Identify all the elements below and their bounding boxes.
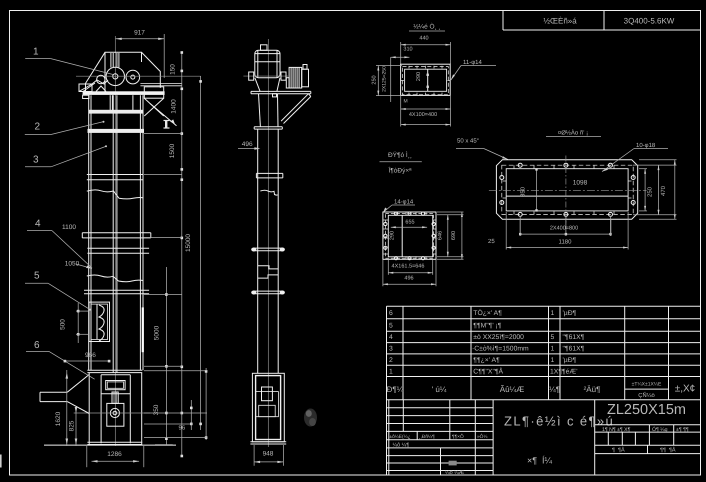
svg-text:150: 150 <box>170 64 177 75</box>
svg-text:1: 1 <box>389 368 393 375</box>
svg-text:966: 966 <box>85 352 96 359</box>
svg-text:5: 5 <box>551 334 555 341</box>
svg-text:²Äü¶: ²Äü¶ <box>584 385 601 394</box>
svg-text:500: 500 <box>60 319 67 330</box>
svg-text:ZL250X15m: ZL250X15m <box>607 402 686 418</box>
svg-text:1: 1 <box>551 346 555 353</box>
svg-text:5: 5 <box>34 271 40 282</box>
svg-text:3: 3 <box>389 346 393 353</box>
svg-text:96: 96 <box>179 425 186 432</box>
svg-text:14-φ14: 14-φ14 <box>394 199 414 206</box>
svg-text:1100: 1100 <box>62 224 76 231</box>
svg-text:M: M <box>404 99 408 105</box>
svg-text:»Ô¼: »Ô¼ <box>477 433 488 440</box>
svg-text:¼¶: ¼¶ <box>549 385 560 394</box>
svg-text:1: 1 <box>33 46 39 57</box>
svg-text:¼ô ¼¶: ¼ô ¼¶ <box>393 443 410 449</box>
svg-text:470: 470 <box>660 185 667 196</box>
svg-text:655: 655 <box>405 220 414 226</box>
svg-text:6: 6 <box>389 310 393 317</box>
svg-text:½ŒÈñ»á: ½ŒÈñ»á <box>543 17 577 26</box>
svg-text:11-φ14: 11-φ14 <box>463 59 482 66</box>
svg-text:¸,Ðñ¼¶: ¸,Ðñ¼¶ <box>419 434 435 440</box>
svg-text:1: 1 <box>551 310 555 317</box>
svg-text:"¶61X¶: "¶61X¶ <box>563 334 585 341</box>
svg-text:"¶61X¶: "¶61X¶ <box>563 346 585 353</box>
svg-text:ÇÑ¼ö: ÇÑ¼ö <box>638 391 654 399</box>
svg-text:1400: 1400 <box>171 99 178 114</box>
svg-text:310: 310 <box>403 47 412 53</box>
svg-text:4X100=400: 4X100=400 <box>409 112 437 118</box>
svg-text:25: 25 <box>488 238 495 245</box>
svg-text:¶¶¿×' A¶: ¶¶¿×' A¶ <box>473 357 500 364</box>
svg-text:·C±ò%ì¶=1500mm: ·C±ò%ì¶=1500mm <box>472 346 529 353</box>
svg-text:'µÐ¶: 'µÐ¶ <box>563 310 577 317</box>
svg-text:3Q400-5.6KW: 3Q400-5.6KW <box>624 17 675 26</box>
svg-text:646: 646 <box>438 231 444 240</box>
svg-text:2X125=250: 2X125=250 <box>382 66 388 92</box>
svg-text:350: 350 <box>153 404 160 415</box>
svg-text:917: 917 <box>134 30 145 37</box>
svg-text:2: 2 <box>35 121 41 132</box>
svg-text:4X161.5=646: 4X161.5=646 <box>392 264 425 270</box>
svg-text:4: 4 <box>389 334 393 341</box>
svg-text:1X¶¶éÆ': 1X¶¶éÆ' <box>550 368 578 375</box>
svg-text:1286: 1286 <box>107 451 122 458</box>
svg-text:±¶ ¶¶: ±¶ ¶¶ <box>676 427 689 433</box>
svg-text:15000: 15000 <box>185 234 192 252</box>
svg-text:ZL¶·ê½ì c é¶»ú: ZL¶·ê½ì c é¶»ú <box>504 414 614 429</box>
svg-text:50 x 45°: 50 x 45° <box>457 138 480 145</box>
svg-text:1: 1 <box>551 357 555 364</box>
svg-text:1050: 1050 <box>65 261 80 268</box>
svg-text:±ô¼E(¼¿: ±ô¼E(¼¿ <box>390 434 411 440</box>
svg-text:825: 825 <box>69 420 76 431</box>
svg-text:¶¶×Õ: ¶¶×Õ <box>452 433 464 440</box>
svg-text:¼ô ¼Æ: ¼ô ¼Æ <box>445 470 465 476</box>
svg-text:±,X¢: ±,X¢ <box>675 384 696 395</box>
svg-text:' ú¼: ' ú¼ <box>432 385 447 394</box>
svg-text:Î¶òÐý×ª: Î¶òÐý×ª <box>387 167 412 175</box>
svg-text:¤Ø½Ào ñ' ¡: ¤Ø½Ào ñ' ¡ <box>558 129 588 137</box>
svg-text:¶¶ ¶Å: ¶¶ ¶Å <box>660 447 676 454</box>
svg-text:290: 290 <box>416 72 422 81</box>
svg-text:2X400=800: 2X400=800 <box>550 226 578 232</box>
svg-text:TÒ¿×' A¶: TÒ¿×' A¶ <box>473 309 502 317</box>
svg-text:Ó¶ ¼g: Ó¶ ¼g <box>652 426 668 433</box>
svg-text:ÐŸ¶ó Ì¸¸: ÐŸ¶ó Ì¸¸ <box>388 151 412 159</box>
svg-text:690: 690 <box>451 231 457 240</box>
svg-text:×¶ Í¼: ×¶ Í¼ <box>527 456 553 466</box>
svg-text:1098: 1098 <box>573 180 588 187</box>
svg-text:5: 5 <box>389 323 393 330</box>
svg-text:1180: 1180 <box>559 239 573 246</box>
svg-text:1¶ N¶ ±¶ X¶: 1¶ N¶ ±¶ X¶ <box>602 427 631 433</box>
svg-text:'µÐ¶: 'µÐ¶ <box>563 357 577 364</box>
svg-text:¶¶­M"¶' ¡¶: ¶¶­M"¶' ¡¶ <box>473 323 501 330</box>
svg-text:496: 496 <box>242 141 253 148</box>
svg-text:3: 3 <box>33 154 39 165</box>
svg-text:1500: 1500 <box>169 143 176 158</box>
svg-text:10-φ18: 10-φ18 <box>636 142 656 149</box>
svg-text:1620: 1620 <box>55 411 62 426</box>
svg-text:Ãû¼Æ: Ãû¼Æ <box>500 384 524 394</box>
svg-text:948: 948 <box>263 451 274 458</box>
svg-text:±T¼X±1X¼E: ±T¼X±1X¼E <box>632 382 662 388</box>
svg-text:½¼é Ò¸ ¸: ½¼é Ò¸ ¸ <box>413 23 440 31</box>
svg-text:496: 496 <box>404 276 413 282</box>
svg-text:¶ ¶Å: ¶ ¶Å <box>612 447 625 454</box>
svg-text:290: 290 <box>390 231 396 240</box>
svg-text:C¶¶"X"¶Å: C¶¶"X"¶Å <box>473 367 503 375</box>
svg-text:250: 250 <box>647 186 654 197</box>
svg-text:4: 4 <box>35 219 41 230</box>
svg-text:5000: 5000 <box>154 325 161 340</box>
svg-text:250: 250 <box>372 75 378 84</box>
svg-text:6: 6 <box>34 340 40 351</box>
svg-text:440: 440 <box>419 36 428 42</box>
svg-text:350: 350 <box>520 186 527 197</box>
svg-text:Ð¶¼: Ð¶¼ <box>387 385 404 394</box>
svg-text:2: 2 <box>389 357 393 364</box>
svg-text:±ò XX25ì¶=2000: ±ò XX25ì¶=2000 <box>473 334 524 341</box>
